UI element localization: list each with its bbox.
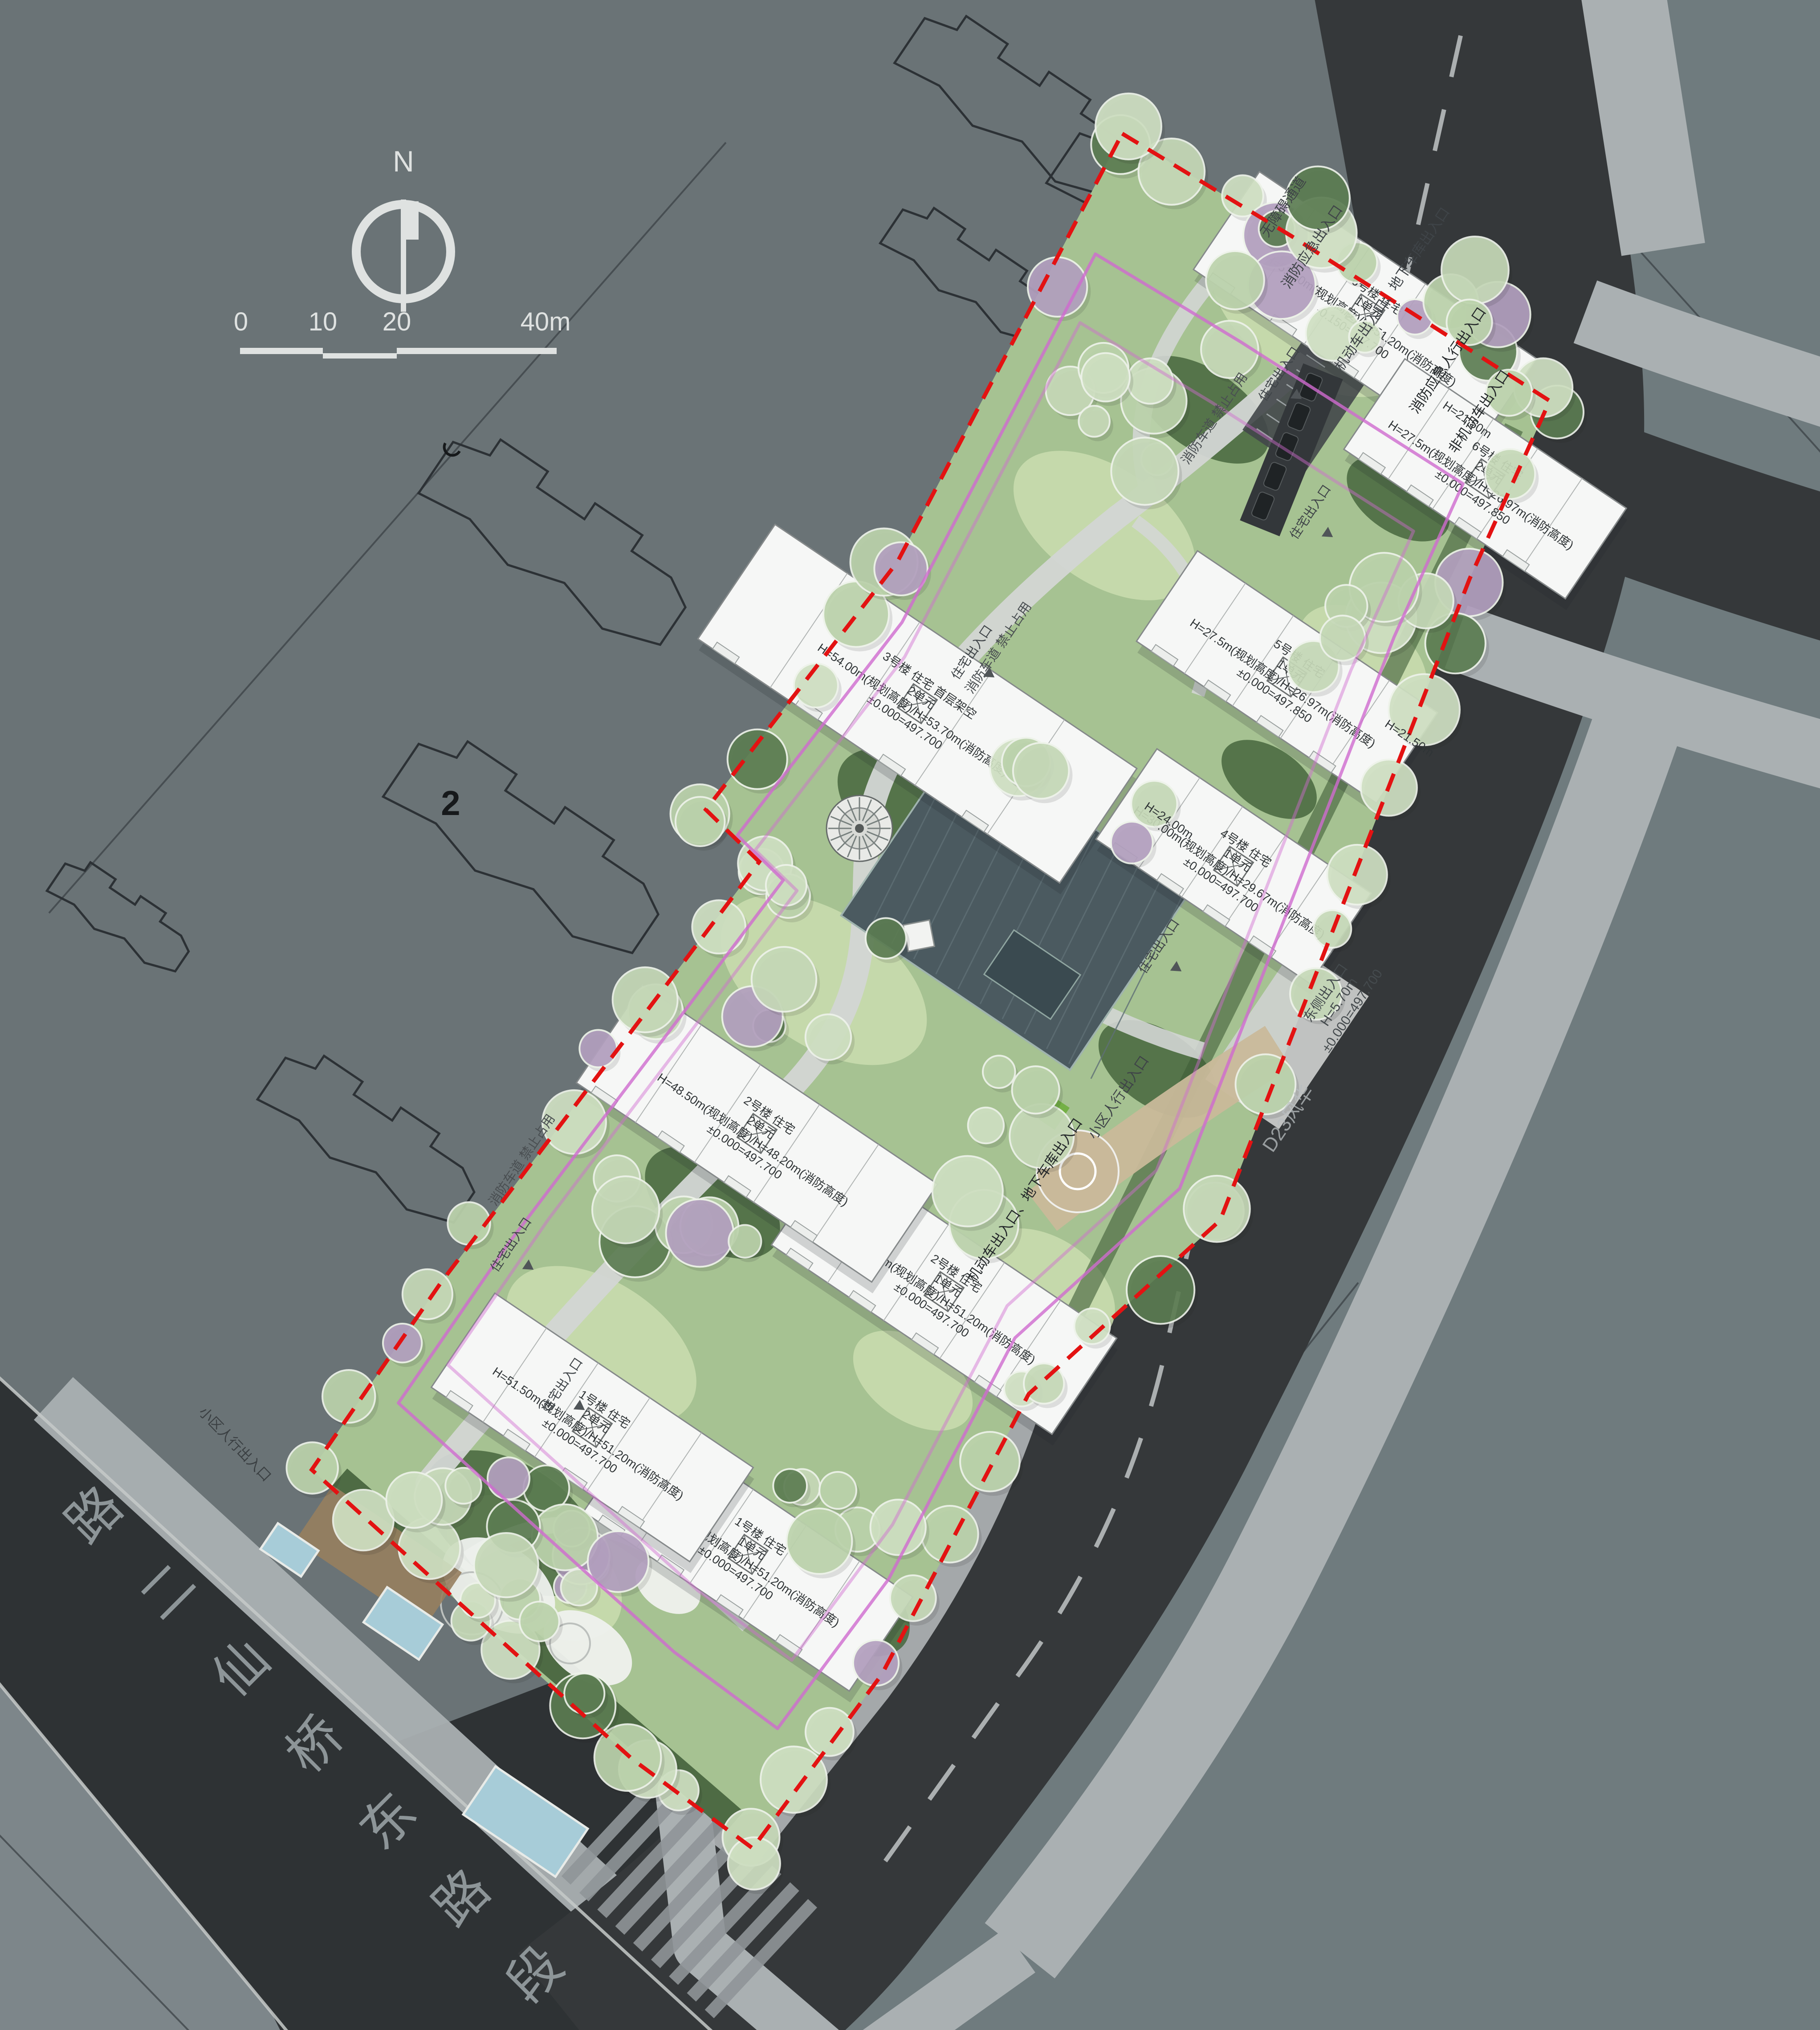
tree [932, 1156, 1003, 1227]
scale-bar-tick-label: 20 [383, 307, 411, 336]
scale-bar-tick-label: 10 [309, 307, 338, 336]
tree [1327, 845, 1387, 905]
tree [488, 1457, 529, 1499]
tree [1012, 1066, 1059, 1113]
tree [1111, 822, 1153, 864]
site-plan-drawing: 21号楼 住宅1单元H=51.50m(规划高度)/H=51.20m(消防高度)±… [0, 0, 1820, 2030]
scale-bar-segment [240, 348, 323, 354]
compass-flag [403, 201, 419, 240]
tree [968, 1108, 1004, 1143]
tree [1013, 743, 1069, 799]
east-road-sidewalk-top [1619, 0, 1663, 249]
scale-bar-tick-label: 0 [234, 307, 248, 336]
tree [806, 1708, 854, 1756]
tree [333, 1490, 394, 1550]
tree [1081, 353, 1130, 402]
tree [819, 1472, 856, 1509]
tree [692, 900, 745, 954]
tree [729, 1225, 761, 1258]
tree [592, 1176, 659, 1243]
tree [1485, 449, 1535, 499]
tree [579, 1030, 617, 1067]
tree [983, 1056, 1015, 1088]
tree [806, 1014, 851, 1060]
tree [520, 1602, 559, 1641]
tree [1127, 1256, 1194, 1324]
tree [960, 1432, 1020, 1492]
tree [1441, 236, 1509, 304]
tree [1111, 438, 1178, 505]
tree [1079, 406, 1109, 436]
scale-bar-segment [323, 353, 397, 359]
tree [761, 1746, 827, 1813]
tree [1184, 1176, 1250, 1242]
tree [383, 1324, 422, 1362]
tree [752, 947, 816, 1011]
tree [386, 1472, 442, 1528]
tree [786, 1508, 852, 1574]
tree [1206, 251, 1264, 310]
north-label: N [393, 145, 414, 178]
tree [613, 967, 678, 1032]
tree [474, 1533, 538, 1597]
scale-bar-segment [397, 348, 557, 354]
scale-bar-tick-label: 40m [521, 307, 571, 336]
parcel-number-label: 2 [441, 783, 460, 823]
tree [403, 1269, 452, 1319]
tree [866, 918, 906, 958]
mandala-plaza [827, 795, 892, 861]
tree [773, 1469, 807, 1503]
tree [564, 1673, 604, 1713]
tree [728, 1837, 780, 1889]
tree [921, 1506, 978, 1562]
tree [853, 1640, 899, 1686]
tree [666, 1199, 733, 1267]
mandala-center [855, 824, 864, 833]
